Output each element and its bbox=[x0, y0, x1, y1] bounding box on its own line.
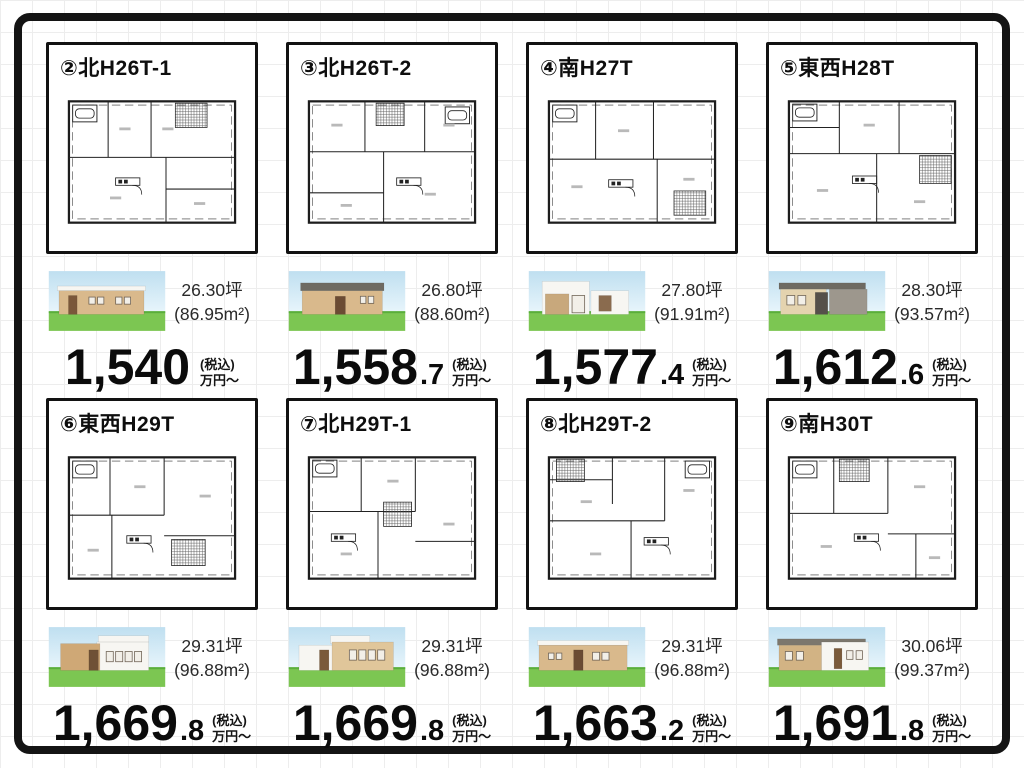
area-info: 26.30坪 (86.95m²) bbox=[166, 262, 258, 340]
house-illustration bbox=[48, 618, 166, 696]
price-integer: 1,669 bbox=[293, 701, 418, 746]
area-info: 29.31坪 (96.88m²) bbox=[166, 618, 258, 696]
price-unit: 万円〜 bbox=[932, 373, 971, 389]
price-suffix: (税込) 万円〜 bbox=[932, 713, 971, 746]
tax-note: (税込) bbox=[932, 357, 971, 373]
price-fraction: .7 bbox=[420, 361, 444, 390]
area-sqm: (93.57m²) bbox=[894, 302, 970, 327]
price-unit: 万円〜 bbox=[692, 729, 731, 745]
plan-card: ⑥東西H29T 29.31坪 (96.88m²) 1,669 .8 (税込) 万… bbox=[46, 398, 258, 746]
area-sqm: (88.60m²) bbox=[414, 302, 490, 327]
price-row: 1,612 .6 (税込) 万円〜 bbox=[766, 340, 978, 390]
area-sqm: (99.37m²) bbox=[894, 658, 970, 683]
floorplan-box: ⑦北H29T-1 bbox=[286, 398, 498, 610]
plan-card: ④南H27T 27.80坪 (91.91m²) 1,577 .4 (税込) 万円… bbox=[526, 42, 738, 390]
price-suffix: (税込) 万円〜 bbox=[212, 713, 251, 746]
area-info: 29.31坪 (96.88m²) bbox=[646, 618, 738, 696]
price-suffix: (税込) 万円〜 bbox=[692, 713, 731, 746]
house-illustration bbox=[768, 262, 886, 340]
price-row: 1,540 (税込) 万円〜 bbox=[46, 340, 258, 390]
price-integer: 1,669 bbox=[53, 701, 178, 746]
price-fraction: .8 bbox=[900, 717, 924, 746]
area-tsubo: 29.31坪 bbox=[181, 634, 242, 659]
price-suffix: (税込) 万円〜 bbox=[932, 357, 971, 390]
spec-row: 30.06坪 (99.37m²) bbox=[768, 618, 978, 696]
plan-card: ⑧北H29T-2 29.31坪 (96.88m²) 1,663 .2 (税込) … bbox=[526, 398, 738, 746]
price-fraction: .4 bbox=[660, 361, 684, 390]
price-row: 1,669 .8 (税込) 万円〜 bbox=[286, 696, 498, 746]
spec-row: 27.80坪 (91.91m²) bbox=[528, 262, 738, 340]
area-sqm: (86.95m²) bbox=[174, 302, 250, 327]
area-info: 30.06坪 (99.37m²) bbox=[886, 618, 978, 696]
spec-row: 29.31坪 (96.88m²) bbox=[528, 618, 738, 696]
price-unit: 万円〜 bbox=[200, 373, 239, 389]
price-fraction: .6 bbox=[900, 361, 924, 390]
area-tsubo: 27.80坪 bbox=[661, 278, 722, 303]
price-row: 1,577 .4 (税込) 万円〜 bbox=[526, 340, 738, 390]
price-suffix: (税込) 万円〜 bbox=[452, 713, 491, 746]
tax-note: (税込) bbox=[692, 357, 731, 373]
floorplan-box: ③北H26T-2 bbox=[286, 42, 498, 254]
house-illustration bbox=[288, 262, 406, 340]
floorplan-box: ⑨南H30T bbox=[766, 398, 978, 610]
spec-row: 26.30坪 (86.95m²) bbox=[48, 262, 258, 340]
price-suffix: (税込) 万円〜 bbox=[692, 357, 731, 390]
tax-note: (税込) bbox=[452, 357, 491, 373]
price-fraction: .2 bbox=[660, 717, 684, 746]
price-unit: 万円〜 bbox=[452, 729, 491, 745]
area-tsubo: 29.31坪 bbox=[421, 634, 482, 659]
plan-card: ③北H26T-2 26.80坪 (88.60m²) 1,558 .7 (税込) … bbox=[286, 42, 498, 390]
floorplan-box: ②北H26T-1 bbox=[46, 42, 258, 254]
area-info: 29.31坪 (96.88m²) bbox=[406, 618, 498, 696]
area-info: 26.80坪 (88.60m²) bbox=[406, 262, 498, 340]
floorplan-drawing bbox=[534, 434, 730, 602]
floorplan-drawing bbox=[294, 434, 490, 602]
price-unit: 万円〜 bbox=[692, 373, 731, 389]
area-sqm: (91.91m²) bbox=[654, 302, 730, 327]
house-illustration bbox=[768, 618, 886, 696]
plan-card: ⑦北H29T-1 29.31坪 (96.88m²) 1,669 .8 (税込) … bbox=[286, 398, 498, 746]
house-illustration bbox=[288, 618, 406, 696]
price-suffix: (税込) 万円〜 bbox=[200, 357, 239, 390]
price-suffix: (税込) 万円〜 bbox=[452, 357, 491, 390]
price-integer: 1,558 bbox=[293, 345, 418, 390]
spec-row: 29.31坪 (96.88m²) bbox=[48, 618, 258, 696]
plan-card: ②北H26T-1 26.30坪 (86.95m²) 1,540 (税込) 万円〜 bbox=[46, 42, 258, 390]
price-integer: 1,612 bbox=[773, 345, 898, 390]
tax-note: (税込) bbox=[932, 713, 971, 729]
price-unit: 万円〜 bbox=[212, 729, 251, 745]
price-integer: 1,691 bbox=[773, 701, 898, 746]
price-fraction: .8 bbox=[180, 717, 204, 746]
floorplan-box: ④南H27T bbox=[526, 42, 738, 254]
tax-note: (税込) bbox=[212, 713, 251, 729]
floorplan-drawing bbox=[294, 78, 490, 246]
price-integer: 1,577 bbox=[533, 345, 658, 390]
area-tsubo: 26.30坪 bbox=[181, 278, 242, 303]
price-integer: 1,540 bbox=[65, 345, 190, 390]
tax-note: (税込) bbox=[692, 713, 731, 729]
floorplan-drawing bbox=[774, 434, 970, 602]
price-row: 1,558 .7 (税込) 万円〜 bbox=[286, 340, 498, 390]
area-tsubo: 26.80坪 bbox=[421, 278, 482, 303]
tax-note: (税込) bbox=[200, 357, 239, 373]
floorplan-drawing bbox=[54, 434, 250, 602]
floorplan-box: ⑤東西H28T bbox=[766, 42, 978, 254]
price-unit: 万円〜 bbox=[452, 373, 491, 389]
price-row: 1,691 .8 (税込) 万円〜 bbox=[766, 696, 978, 746]
floorplan-box: ⑧北H29T-2 bbox=[526, 398, 738, 610]
area-sqm: (96.88m²) bbox=[414, 658, 490, 683]
plan-card: ⑨南H30T 30.06坪 (99.37m²) 1,691 .8 (税込) 万円… bbox=[766, 398, 978, 746]
price-row: 1,663 .2 (税込) 万円〜 bbox=[526, 696, 738, 746]
floorplan-drawing bbox=[774, 78, 970, 246]
plan-card: ⑤東西H28T 28.30坪 (93.57m²) 1,612 .6 (税込) 万… bbox=[766, 42, 978, 390]
house-illustration bbox=[528, 618, 646, 696]
price-fraction: .8 bbox=[420, 717, 444, 746]
area-info: 28.30坪 (93.57m²) bbox=[886, 262, 978, 340]
house-illustration bbox=[48, 262, 166, 340]
floorplan-drawing bbox=[534, 78, 730, 246]
house-illustration bbox=[528, 262, 646, 340]
price-unit: 万円〜 bbox=[932, 729, 971, 745]
area-tsubo: 30.06坪 bbox=[901, 634, 962, 659]
area-tsubo: 29.31坪 bbox=[661, 634, 722, 659]
area-sqm: (96.88m²) bbox=[654, 658, 730, 683]
spec-row: 29.31坪 (96.88m²) bbox=[288, 618, 498, 696]
floorplan-drawing bbox=[54, 78, 250, 246]
area-sqm: (96.88m²) bbox=[174, 658, 250, 683]
spec-row: 28.30坪 (93.57m²) bbox=[768, 262, 978, 340]
floorplan-box: ⑥東西H29T bbox=[46, 398, 258, 610]
price-row: 1,669 .8 (税込) 万円〜 bbox=[46, 696, 258, 746]
tax-note: (税込) bbox=[452, 713, 491, 729]
spec-row: 26.80坪 (88.60m²) bbox=[288, 262, 498, 340]
area-tsubo: 28.30坪 bbox=[901, 278, 962, 303]
price-integer: 1,663 bbox=[533, 701, 658, 746]
area-info: 27.80坪 (91.91m²) bbox=[646, 262, 738, 340]
